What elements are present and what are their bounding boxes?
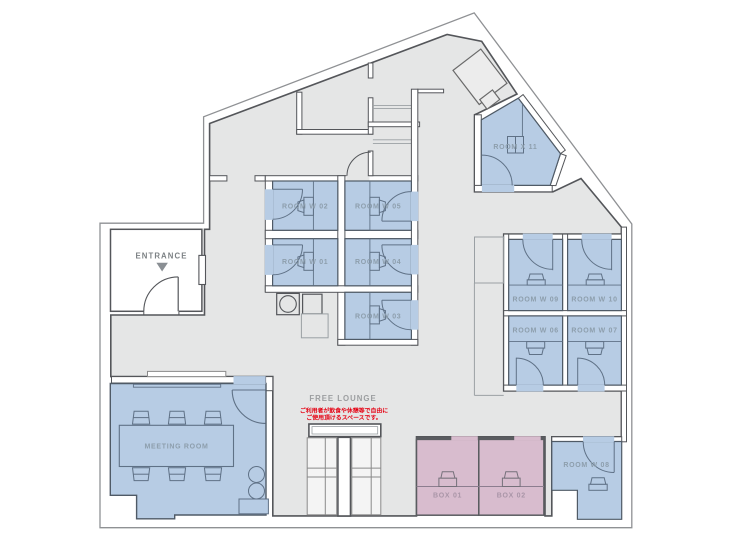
svg-text:FREE LOUNGE: FREE LOUNGE: [309, 394, 376, 403]
svg-text:ROOM W 04: ROOM W 04: [355, 259, 401, 266]
svg-text:ROOM W 07: ROOM W 07: [571, 328, 617, 335]
svg-text:ご使用頂けるスペースです。: ご使用頂けるスペースです。: [306, 413, 381, 421]
svg-text:ROOM W 08: ROOM W 08: [563, 462, 609, 469]
svg-text:ROOM W 09: ROOM W 09: [513, 297, 559, 304]
svg-text:ROOM W 02: ROOM W 02: [282, 204, 328, 211]
svg-text:ROOM W 01: ROOM W 01: [282, 259, 328, 266]
svg-text:MEETING ROOM: MEETING ROOM: [144, 444, 208, 451]
svg-text:BOX 02: BOX 02: [497, 493, 526, 500]
svg-text:BOX 01: BOX 01: [433, 493, 462, 500]
svg-text:ROOM W 06: ROOM W 06: [513, 328, 559, 335]
svg-text:ENTRANCE: ENTRANCE: [135, 252, 187, 261]
svg-text:ROOM W 03: ROOM W 03: [355, 314, 401, 321]
svg-text:ご利用者が飲食や休憩等で自由に: ご利用者が飲食や休憩等で自由に: [300, 407, 388, 415]
svg-text:ROOM W 10: ROOM W 10: [571, 297, 617, 304]
svg-text:ROOM X 11: ROOM X 11: [493, 144, 537, 151]
svg-text:ROOM W 05: ROOM W 05: [355, 204, 401, 211]
